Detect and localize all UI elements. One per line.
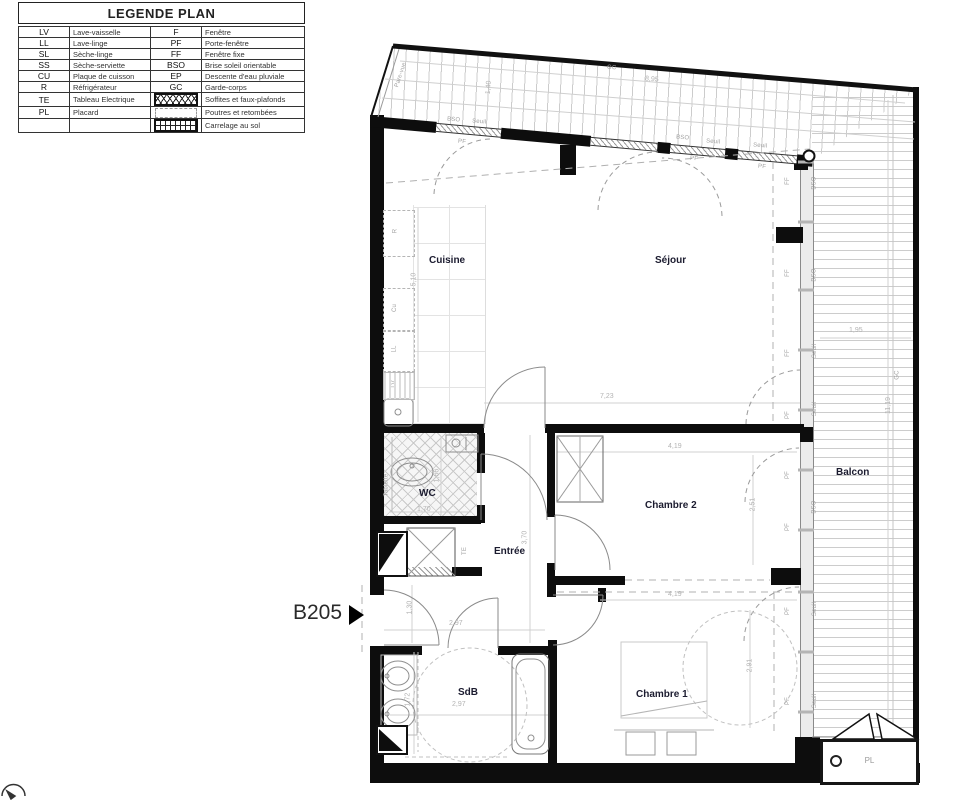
window-sill-ticks (798, 162, 814, 712)
dim-balcon-width: 1,95 (849, 327, 863, 334)
dim-entree-height: 3,70 (521, 531, 528, 545)
terrace-lines (371, 46, 917, 737)
dim-terrace-width: 8,95 (645, 75, 659, 83)
floor-plan-page: LEGENDE PLAN LVLave-vaisselle FFenêtre L… (0, 0, 963, 800)
dim-kitchen-height: 5,10 (410, 273, 417, 287)
dim-balcon-height: 11,19 (885, 397, 892, 414)
dim-chambre2-height: 2,51 (749, 498, 756, 512)
dim-wc-width: 1,70 (417, 506, 431, 513)
pf-label: PF (785, 411, 791, 419)
dim-sdb-width: 2,97 (452, 701, 466, 708)
pf-label: PF (785, 471, 791, 479)
seuil-label: Seuil (812, 694, 818, 708)
te-label: TE (462, 547, 468, 555)
fridge-box (383, 210, 415, 257)
pf-label: PF (785, 607, 791, 615)
seuil-label: Seuil (812, 344, 818, 358)
ff-label: FF (785, 177, 791, 185)
room-label-chambre1: Chambre 1 (636, 690, 688, 700)
dim-terrace-depth: 1,40 (485, 80, 493, 94)
ff-label: FF (785, 349, 791, 357)
window-swing-dashed-arcs (434, 139, 800, 641)
room-label-cuisine: Cuisine (429, 256, 465, 266)
dim-sdb-height: 1,72 (404, 693, 411, 707)
dimension-lines (384, 61, 911, 754)
bso-label: BSO (812, 500, 818, 513)
pf-label: PF (690, 156, 699, 163)
gc-label: GC (895, 370, 901, 379)
pf-label: PF (458, 139, 467, 146)
ceiling-dashed-lines (362, 149, 810, 735)
gc-label: GC (607, 65, 617, 72)
room-label-wc: WC (419, 489, 436, 499)
seuil-label: Seuil (812, 402, 818, 416)
tablette-label: Tablette (383, 474, 389, 497)
washer-box (383, 330, 415, 372)
seuil-label: Seuil (706, 138, 721, 145)
dim-entree-width: 2,97 (449, 620, 463, 627)
unit-pointer-icon (349, 605, 364, 625)
seuil-label: Seuil (472, 118, 487, 125)
dishwasher-box (383, 372, 415, 400)
seuil-label: Seuil (812, 602, 818, 616)
pf-label: PF (785, 697, 791, 705)
room-label-sejour: Séjour (655, 256, 686, 266)
dim-chambre1-width: 4,19 (668, 591, 682, 598)
dim-chambre1-height: 2,91 (746, 659, 753, 673)
bso-label: BSO (812, 268, 818, 281)
pf-label: PF (785, 523, 791, 531)
unit-number: B205 (293, 602, 342, 623)
dim-entree-door: 1,30 (406, 601, 413, 615)
dim-chambre2-width: 4,19 (668, 443, 682, 450)
bso-label: BSO (812, 176, 818, 189)
dim-sejour-width: 7,23 (600, 393, 614, 400)
dim-wc-height: 1,66 (433, 469, 440, 483)
room-label-chambre2: Chambre 2 (645, 501, 697, 511)
room-label-balcon: Balcon (836, 468, 869, 478)
placard-folding-doors (833, 714, 917, 739)
compass-icon (2, 785, 25, 800)
pf-label: PF (758, 164, 767, 171)
bso-label: BSO (676, 134, 690, 141)
room-label-entree: Entrée (494, 547, 525, 557)
seuil-label: Seuil (753, 142, 768, 149)
placard-label: PL (823, 756, 916, 765)
hob-box (383, 288, 415, 332)
room-label-sdb: SdB (458, 688, 478, 698)
placard-box: PL (820, 739, 919, 785)
bso-label: BSO (447, 116, 461, 123)
ep-downpipe-icon (804, 151, 815, 162)
ff-label: FF (785, 269, 791, 277)
